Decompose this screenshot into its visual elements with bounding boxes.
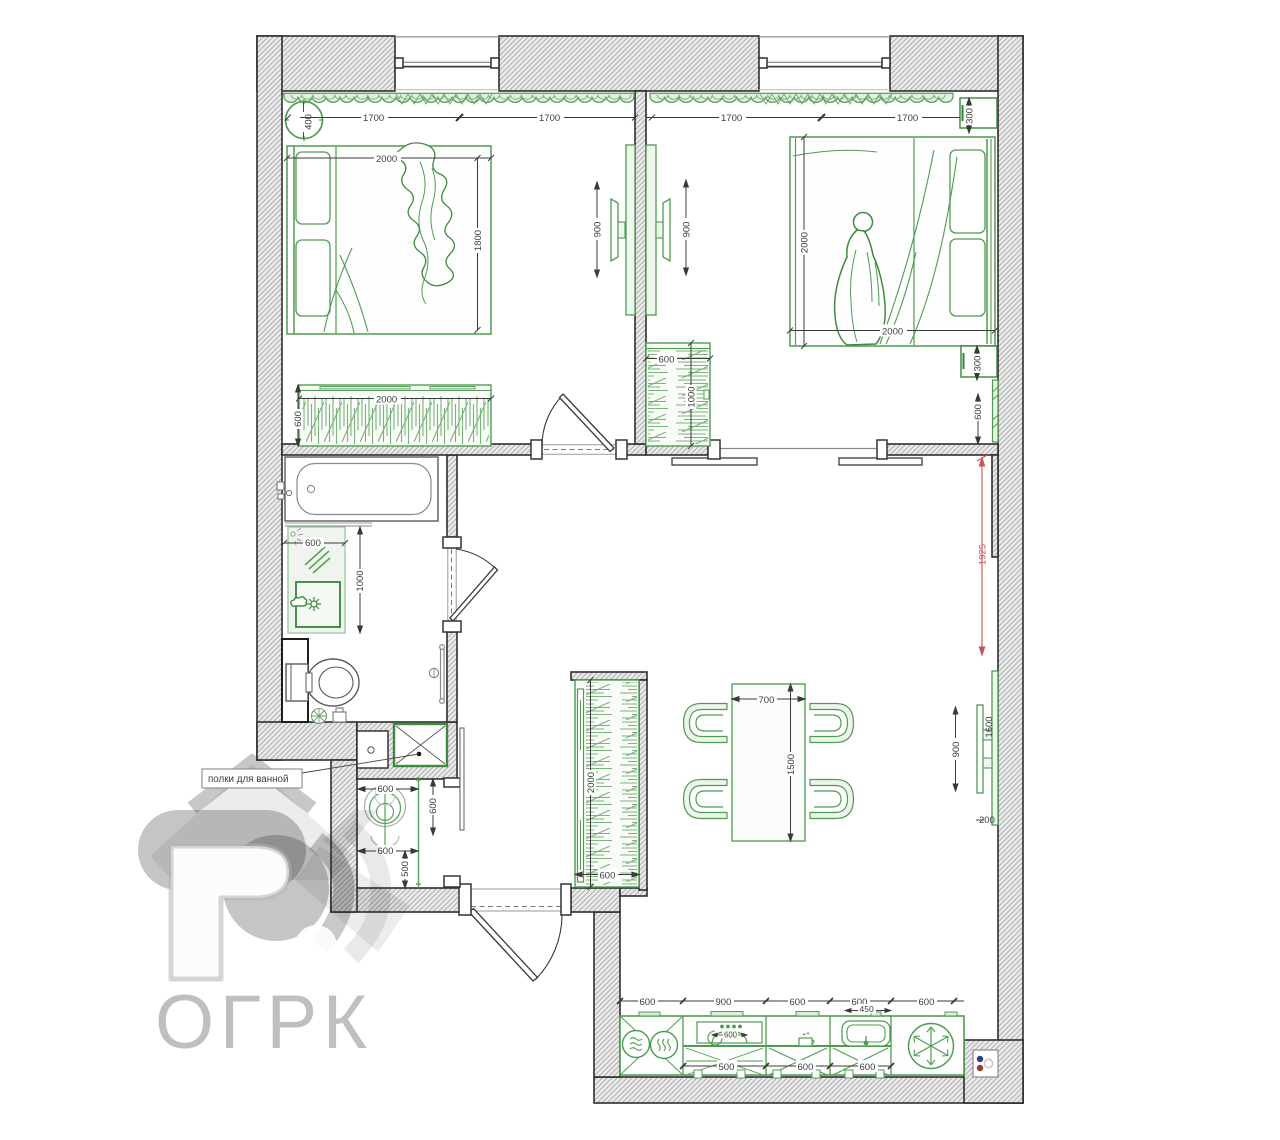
svg-text:600: 600 <box>919 997 935 1008</box>
svg-text:2000: 2000 <box>799 232 810 253</box>
svg-text:900: 900 <box>951 742 962 758</box>
svg-text:900: 900 <box>681 222 692 238</box>
svg-text:600: 600 <box>659 355 675 366</box>
svg-text:полки для ванной: полки для ванной <box>208 774 288 785</box>
svg-text:600: 600 <box>798 1062 814 1073</box>
svg-text:1700: 1700 <box>363 113 384 124</box>
svg-text:1000: 1000 <box>686 386 697 407</box>
svg-text:2000: 2000 <box>882 327 903 338</box>
svg-text:300: 300 <box>964 108 975 124</box>
svg-text:500: 500 <box>400 861 411 877</box>
svg-text:600: 600 <box>860 1062 876 1073</box>
svg-text:600: 600 <box>305 538 321 549</box>
svg-text:1700: 1700 <box>539 113 560 124</box>
svg-text:1700: 1700 <box>721 113 742 124</box>
svg-text:900: 900 <box>592 222 603 238</box>
svg-text:600: 600 <box>600 871 616 882</box>
svg-text:2000: 2000 <box>376 395 397 406</box>
svg-text:1800: 1800 <box>473 230 484 251</box>
svg-text:1925: 1925 <box>977 544 988 565</box>
svg-text:600: 600 <box>293 411 304 427</box>
svg-text:1700: 1700 <box>897 113 918 124</box>
svg-text:2000: 2000 <box>586 772 597 793</box>
svg-text:400: 400 <box>303 114 314 130</box>
svg-text:500: 500 <box>719 1062 735 1073</box>
svg-text:600: 600 <box>790 997 806 1008</box>
svg-text:1500: 1500 <box>786 754 797 775</box>
svg-text:600: 600 <box>973 404 984 420</box>
svg-text:450: 450 <box>860 1004 874 1014</box>
svg-text:900: 900 <box>716 997 732 1008</box>
svg-text:1000: 1000 <box>355 570 366 591</box>
svg-text:300: 300 <box>972 356 983 372</box>
svg-text:2000: 2000 <box>376 154 397 165</box>
svg-text:600: 600 <box>378 784 394 795</box>
svg-text:600: 600 <box>724 1031 738 1040</box>
svg-text:200: 200 <box>979 815 995 826</box>
svg-text:700: 700 <box>759 695 775 706</box>
svg-text:1600: 1600 <box>984 716 995 737</box>
svg-text:600: 600 <box>640 997 656 1008</box>
svg-text:600: 600 <box>428 798 439 814</box>
